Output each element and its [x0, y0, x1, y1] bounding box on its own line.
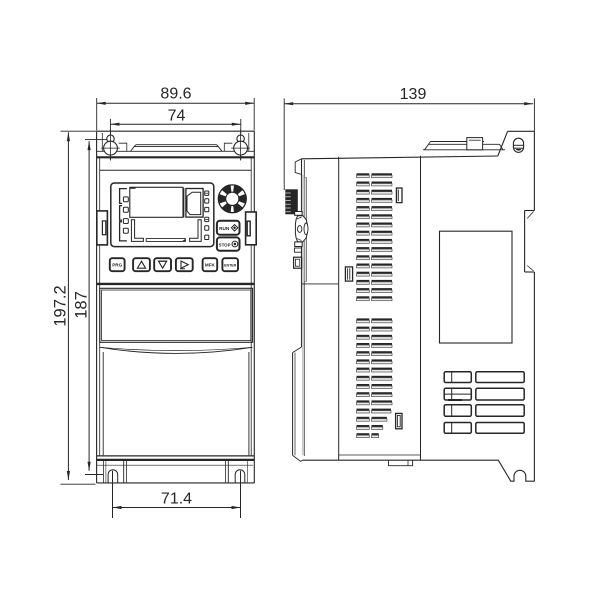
svg-text:197.2: 197.2	[52, 285, 70, 326]
svg-text:71.4: 71.4	[161, 491, 192, 508]
svg-text:139: 139	[400, 86, 427, 103]
svg-text:ENTER: ENTER	[224, 263, 237, 267]
svg-text:MFK: MFK	[205, 263, 216, 268]
svg-text:74: 74	[168, 108, 186, 125]
svg-text:PRG: PRG	[112, 263, 122, 268]
svg-text:RUN: RUN	[219, 226, 230, 231]
svg-text:89.6: 89.6	[160, 86, 191, 103]
svg-text:187: 187	[73, 291, 91, 319]
svg-text:STOP: STOP	[219, 243, 231, 248]
